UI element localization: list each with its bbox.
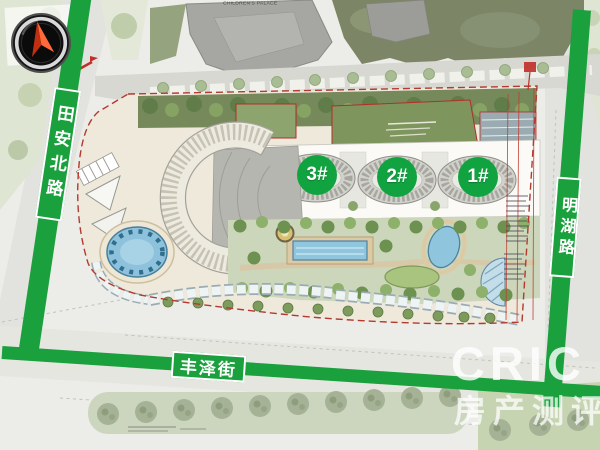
unit-badge-3: 3#: [297, 155, 337, 195]
road-name-fengze: 丰泽街: [171, 350, 247, 382]
site-plan-screenshot: CHILDREN'S PALACE 田安北路 明湖路 丰泽街 3# 2# 1# …: [0, 0, 600, 450]
watermark-brand: CRIC: [451, 336, 586, 391]
children-palace-label: CHILDREN'S PALACE: [223, 0, 277, 6]
watermark-tagline: 房产测评: [454, 386, 600, 432]
unit-badge-1: 1#: [458, 157, 498, 197]
north-arrow-compass-icon: [10, 12, 72, 74]
unit-badge-2: 2#: [377, 157, 417, 197]
